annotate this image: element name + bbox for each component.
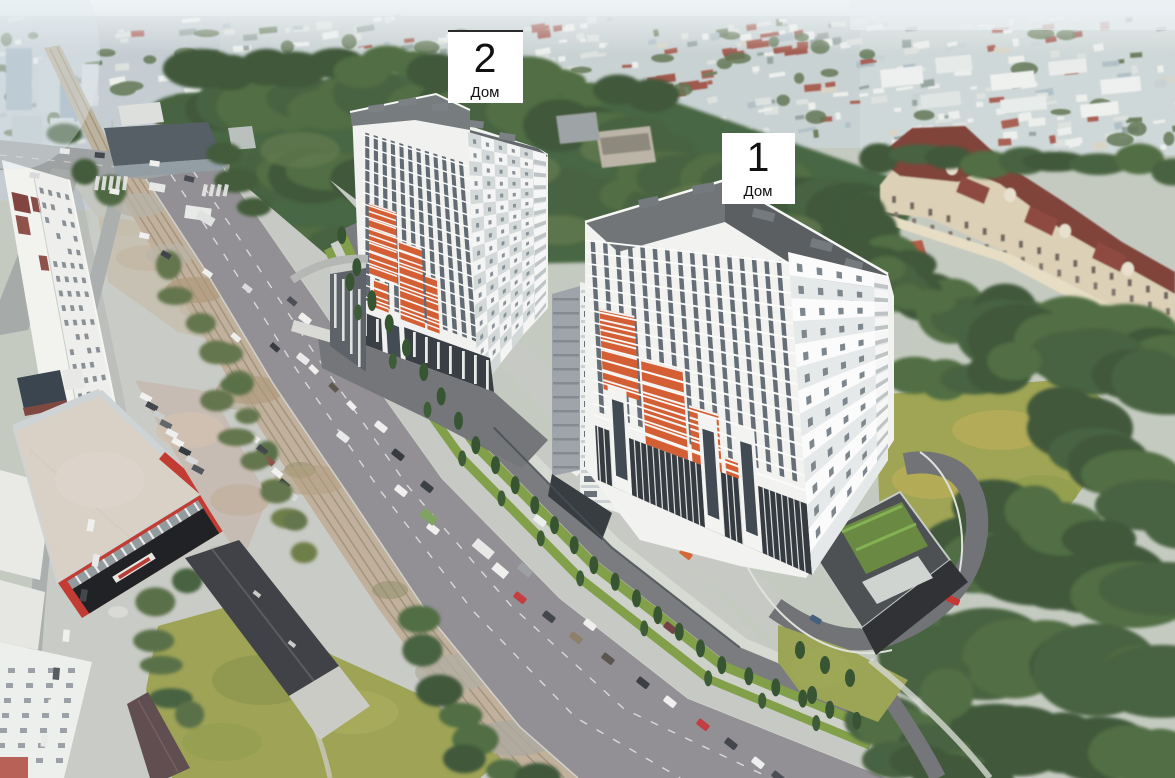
svg-text:1: 1 bbox=[747, 134, 770, 180]
svg-text:Дом: Дом bbox=[471, 84, 500, 101]
svg-text:2: 2 bbox=[474, 35, 497, 81]
svg-text:Дом: Дом bbox=[744, 183, 773, 200]
